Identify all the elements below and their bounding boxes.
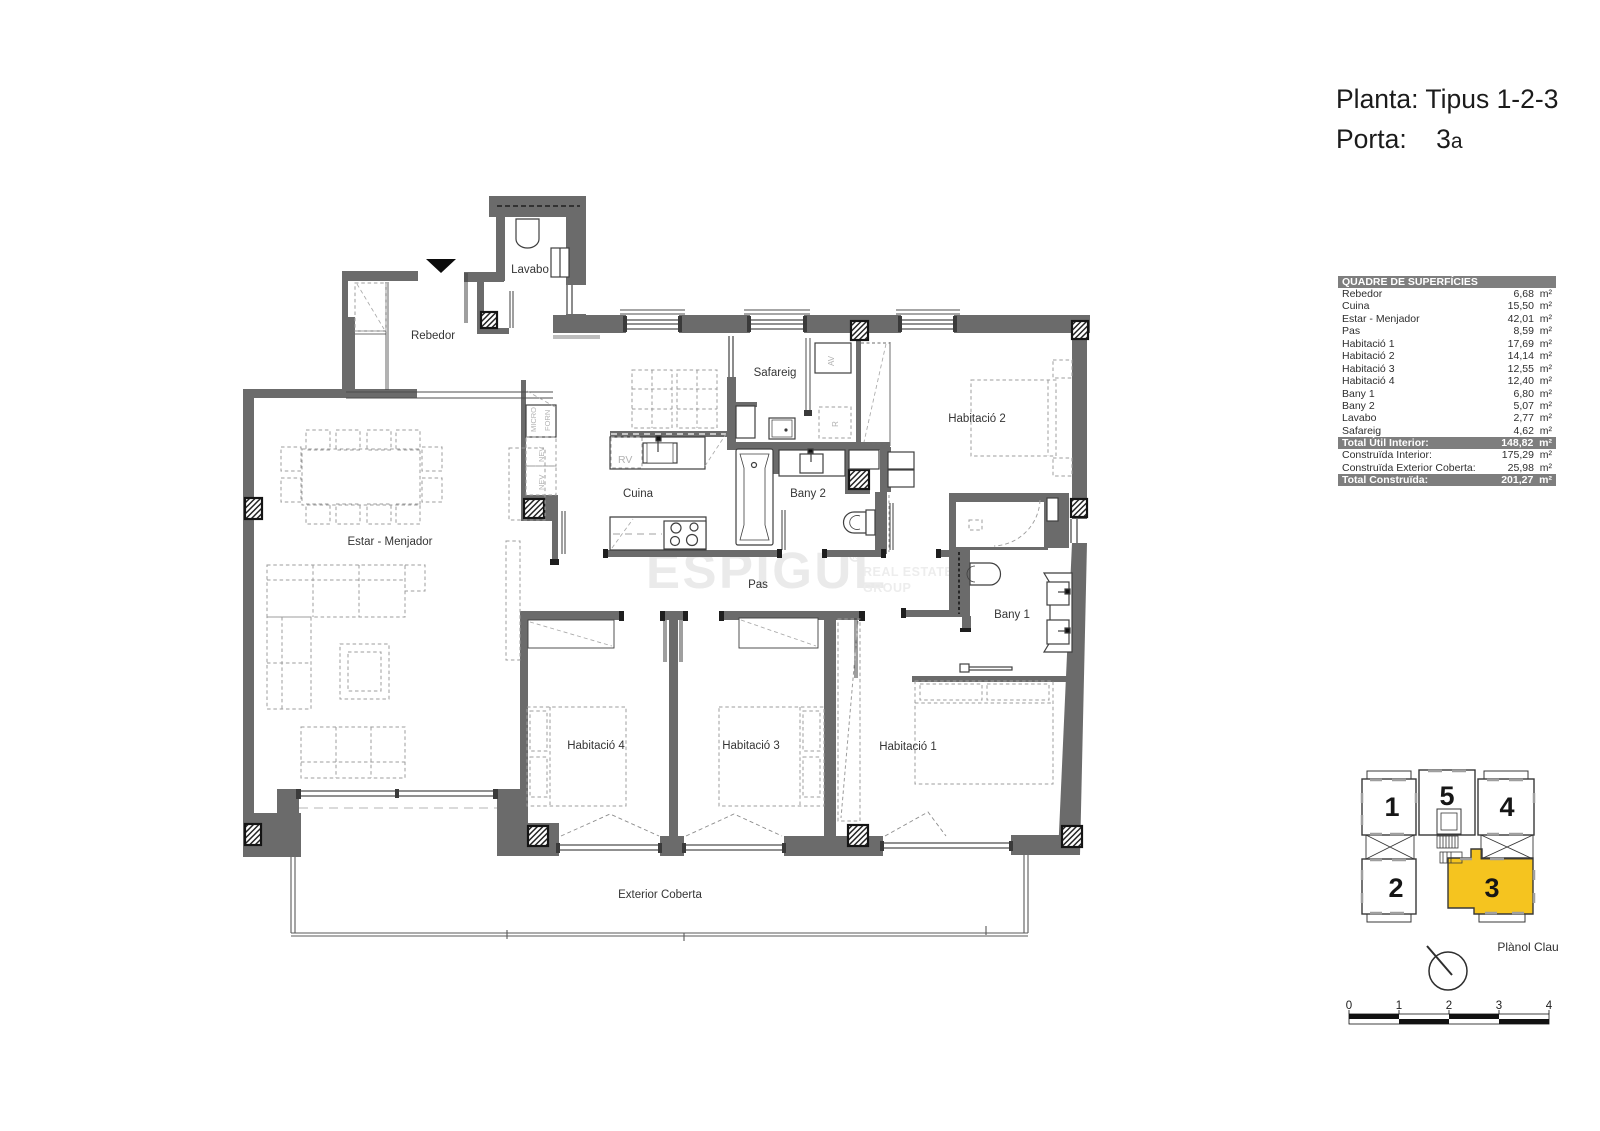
svg-text:GROUP: GROUP (863, 581, 911, 595)
svg-text:Habitació 2: Habitació 2 (948, 413, 1006, 425)
svg-text:Lavabo: Lavabo (511, 264, 549, 276)
svg-text:Estar - Menjador: Estar - Menjador (347, 536, 432, 548)
svg-text:NEV: NEV (537, 447, 546, 462)
svg-text:Bany 1: Bany 1 (994, 609, 1030, 621)
svg-text:MICRO: MICRO (529, 407, 538, 432)
svg-text:Safareig: Safareig (754, 367, 797, 379)
svg-text:REAL ESTATE: REAL ESTATE (863, 565, 953, 579)
svg-text:FORN: FORN (543, 410, 552, 431)
svg-text:4: 4 (1499, 792, 1514, 822)
svg-text:Habitació 3: Habitació 3 (722, 740, 780, 752)
svg-text:AV: AV (827, 355, 836, 366)
svg-text:Pas: Pas (748, 579, 768, 591)
svg-text:Rebedor: Rebedor (411, 330, 455, 342)
svg-text:Exterior Coberta: Exterior Coberta (618, 889, 702, 901)
svg-text:RV: RV (618, 454, 632, 466)
svg-text:3: 3 (1484, 873, 1499, 903)
svg-text:2: 2 (1388, 873, 1403, 903)
svg-text:Bany 2: Bany 2 (790, 488, 826, 500)
svg-text:NEV: NEV (537, 475, 546, 490)
svg-text:Plànol Clau: Plànol Clau (1497, 940, 1558, 954)
svg-text:5: 5 (1439, 781, 1454, 811)
svg-text:Habitació 1: Habitació 1 (879, 741, 937, 753)
svg-text:R: R (831, 421, 840, 427)
svg-text:Cuina: Cuina (623, 488, 654, 500)
svg-text:1: 1 (1384, 792, 1399, 822)
svg-text:Habitació 4: Habitació 4 (567, 740, 625, 752)
